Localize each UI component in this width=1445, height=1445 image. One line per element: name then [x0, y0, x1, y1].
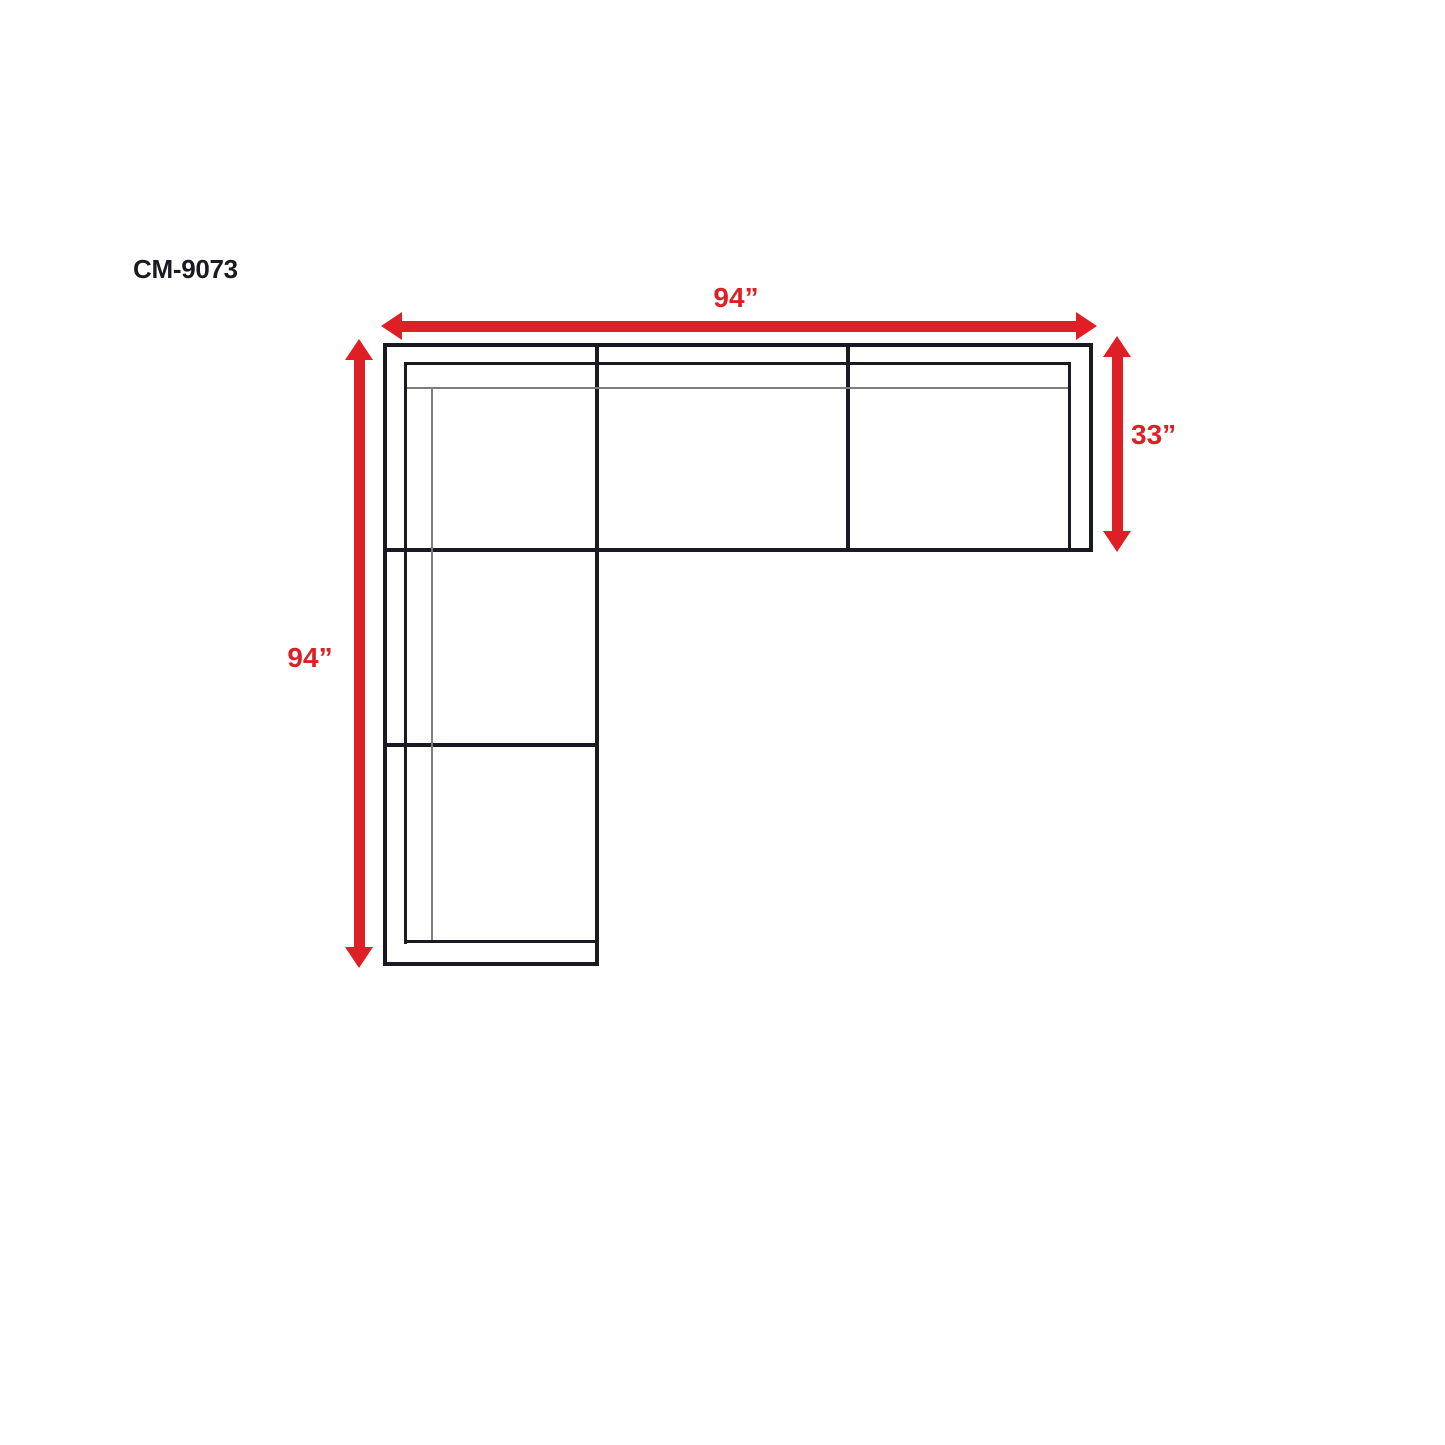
- top-dimension-label: 94”: [661, 284, 811, 312]
- cushion-line-vertical: [431, 389, 433, 940]
- armrest-inner-line-right: [1068, 362, 1071, 552]
- arrowhead-up-icon: [345, 339, 373, 360]
- model-number: CM-9073: [133, 256, 238, 282]
- seat-divider-top-band: [846, 343, 850, 552]
- diagram-canvas: CM-9073 94” 33” 94”: [0, 0, 1445, 1445]
- backrest-inner-line-left: [404, 362, 407, 944]
- seat-divider-left-band: [383, 743, 599, 747]
- right-dimension-arrow: [1112, 355, 1123, 533]
- arrowhead-down-icon: [1103, 531, 1131, 552]
- right-dimension-label: 33”: [1131, 421, 1176, 449]
- backrest-inner-line-top: [404, 362, 1071, 365]
- arrowhead-left-icon: [381, 312, 402, 340]
- left-dimension-label: 94”: [235, 644, 385, 672]
- arrowhead-right-icon: [1076, 312, 1097, 340]
- cushion-line-horizontal: [407, 387, 1068, 389]
- arrowhead-down-icon: [345, 947, 373, 968]
- arrowhead-up-icon: [1103, 336, 1131, 357]
- armrest-inner-line-bottom: [404, 940, 599, 943]
- sofa-left-band-outline: [383, 343, 599, 966]
- top-dimension-arrow: [401, 321, 1078, 332]
